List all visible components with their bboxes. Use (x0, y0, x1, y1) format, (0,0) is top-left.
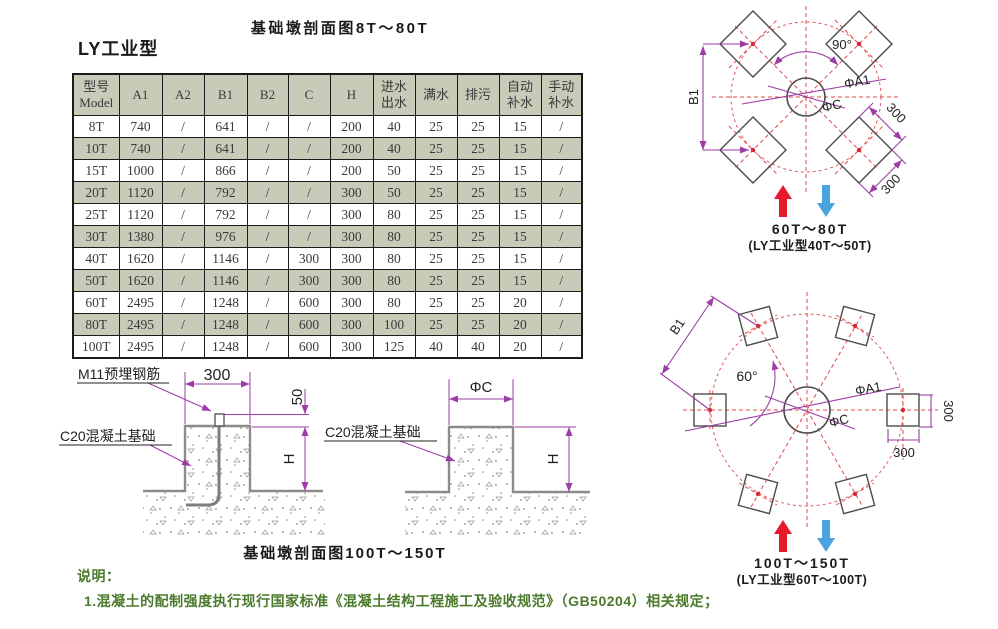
concrete-label: C20混凝土基础 (60, 428, 156, 444)
dim-h: H (545, 454, 562, 465)
rebar-label: M11预埋钢筋 (78, 366, 160, 382)
dim-300a: 300 (941, 400, 956, 422)
up-arrow-icon (774, 520, 792, 552)
angle-label: 60° (736, 368, 757, 384)
layout-60-caption-line1: 100T～150T (672, 555, 932, 572)
dim-phi-c: ΦC (821, 96, 844, 115)
down-arrow-icon (817, 520, 835, 552)
dim-50: 50 (289, 389, 306, 406)
dim-300a: 300 (883, 100, 909, 126)
up-arrow-icon (774, 185, 792, 217)
notes-heading: 说明： (77, 566, 121, 586)
dim-phi-c: ΦC (828, 411, 851, 430)
pier-texture (449, 427, 513, 492)
layout-90-caption-line1: 60T～80T (690, 221, 930, 238)
anchor-bolt-head (215, 414, 224, 426)
notes-line1: 1.混凝土的配制强度执行现行国家标准《混凝土结构工程施工及验收规范》（GB502… (84, 591, 719, 611)
cross-section-left: M11预埋钢筋 C20混凝土基础 300 50 H (59, 366, 325, 535)
dim-phi-c: ΦC (470, 379, 493, 396)
dim-b1: B1 (686, 89, 701, 105)
concrete-label: C20混凝土基础 (325, 424, 421, 440)
dim-300: 300 (204, 367, 231, 384)
layout-60-caption-line2: (LY工业型60T～100T) (672, 572, 932, 589)
dim-phi-a1: ΦA1 (854, 379, 883, 399)
layout-60-caption: 100T～150T (LY工业型60T～100T) (672, 555, 932, 589)
layout-90-caption: 60T～80T (LY工业型40T～50T) (690, 221, 930, 255)
dim-300b: 300 (878, 171, 904, 197)
dim-300b: 300 (893, 445, 915, 460)
down-arrow-icon (817, 185, 835, 217)
catalog-page: 基础墩剖面图8T～80T LY工业型 型号 ModelA1A2B1B2CH进水 … (0, 0, 998, 629)
pier-layout-60: 60° B1 ΦA1 ΦC 300 300 (660, 292, 956, 552)
dim-b1: B1 (667, 316, 688, 338)
layout-90-caption-line2: (LY工业型40T～50T) (690, 238, 930, 255)
soil-texture (405, 492, 590, 536)
angle-label: 90° (832, 37, 852, 52)
dim-h: H (281, 454, 298, 465)
soil-texture (143, 491, 325, 535)
cross-section-right: C20混凝土基础 ΦC H (324, 379, 590, 536)
dim-phi-a1: ΦA1 (843, 72, 872, 92)
pier-layout-90: 90° B1 ΦA1 ΦC 300 300 (686, 6, 909, 217)
technical-drawings: M11预埋钢筋 C20混凝土基础 300 50 H C20混凝土基础 ΦC H (0, 0, 998, 629)
section-caption: 基础墩剖面图100T～150T (95, 542, 595, 563)
